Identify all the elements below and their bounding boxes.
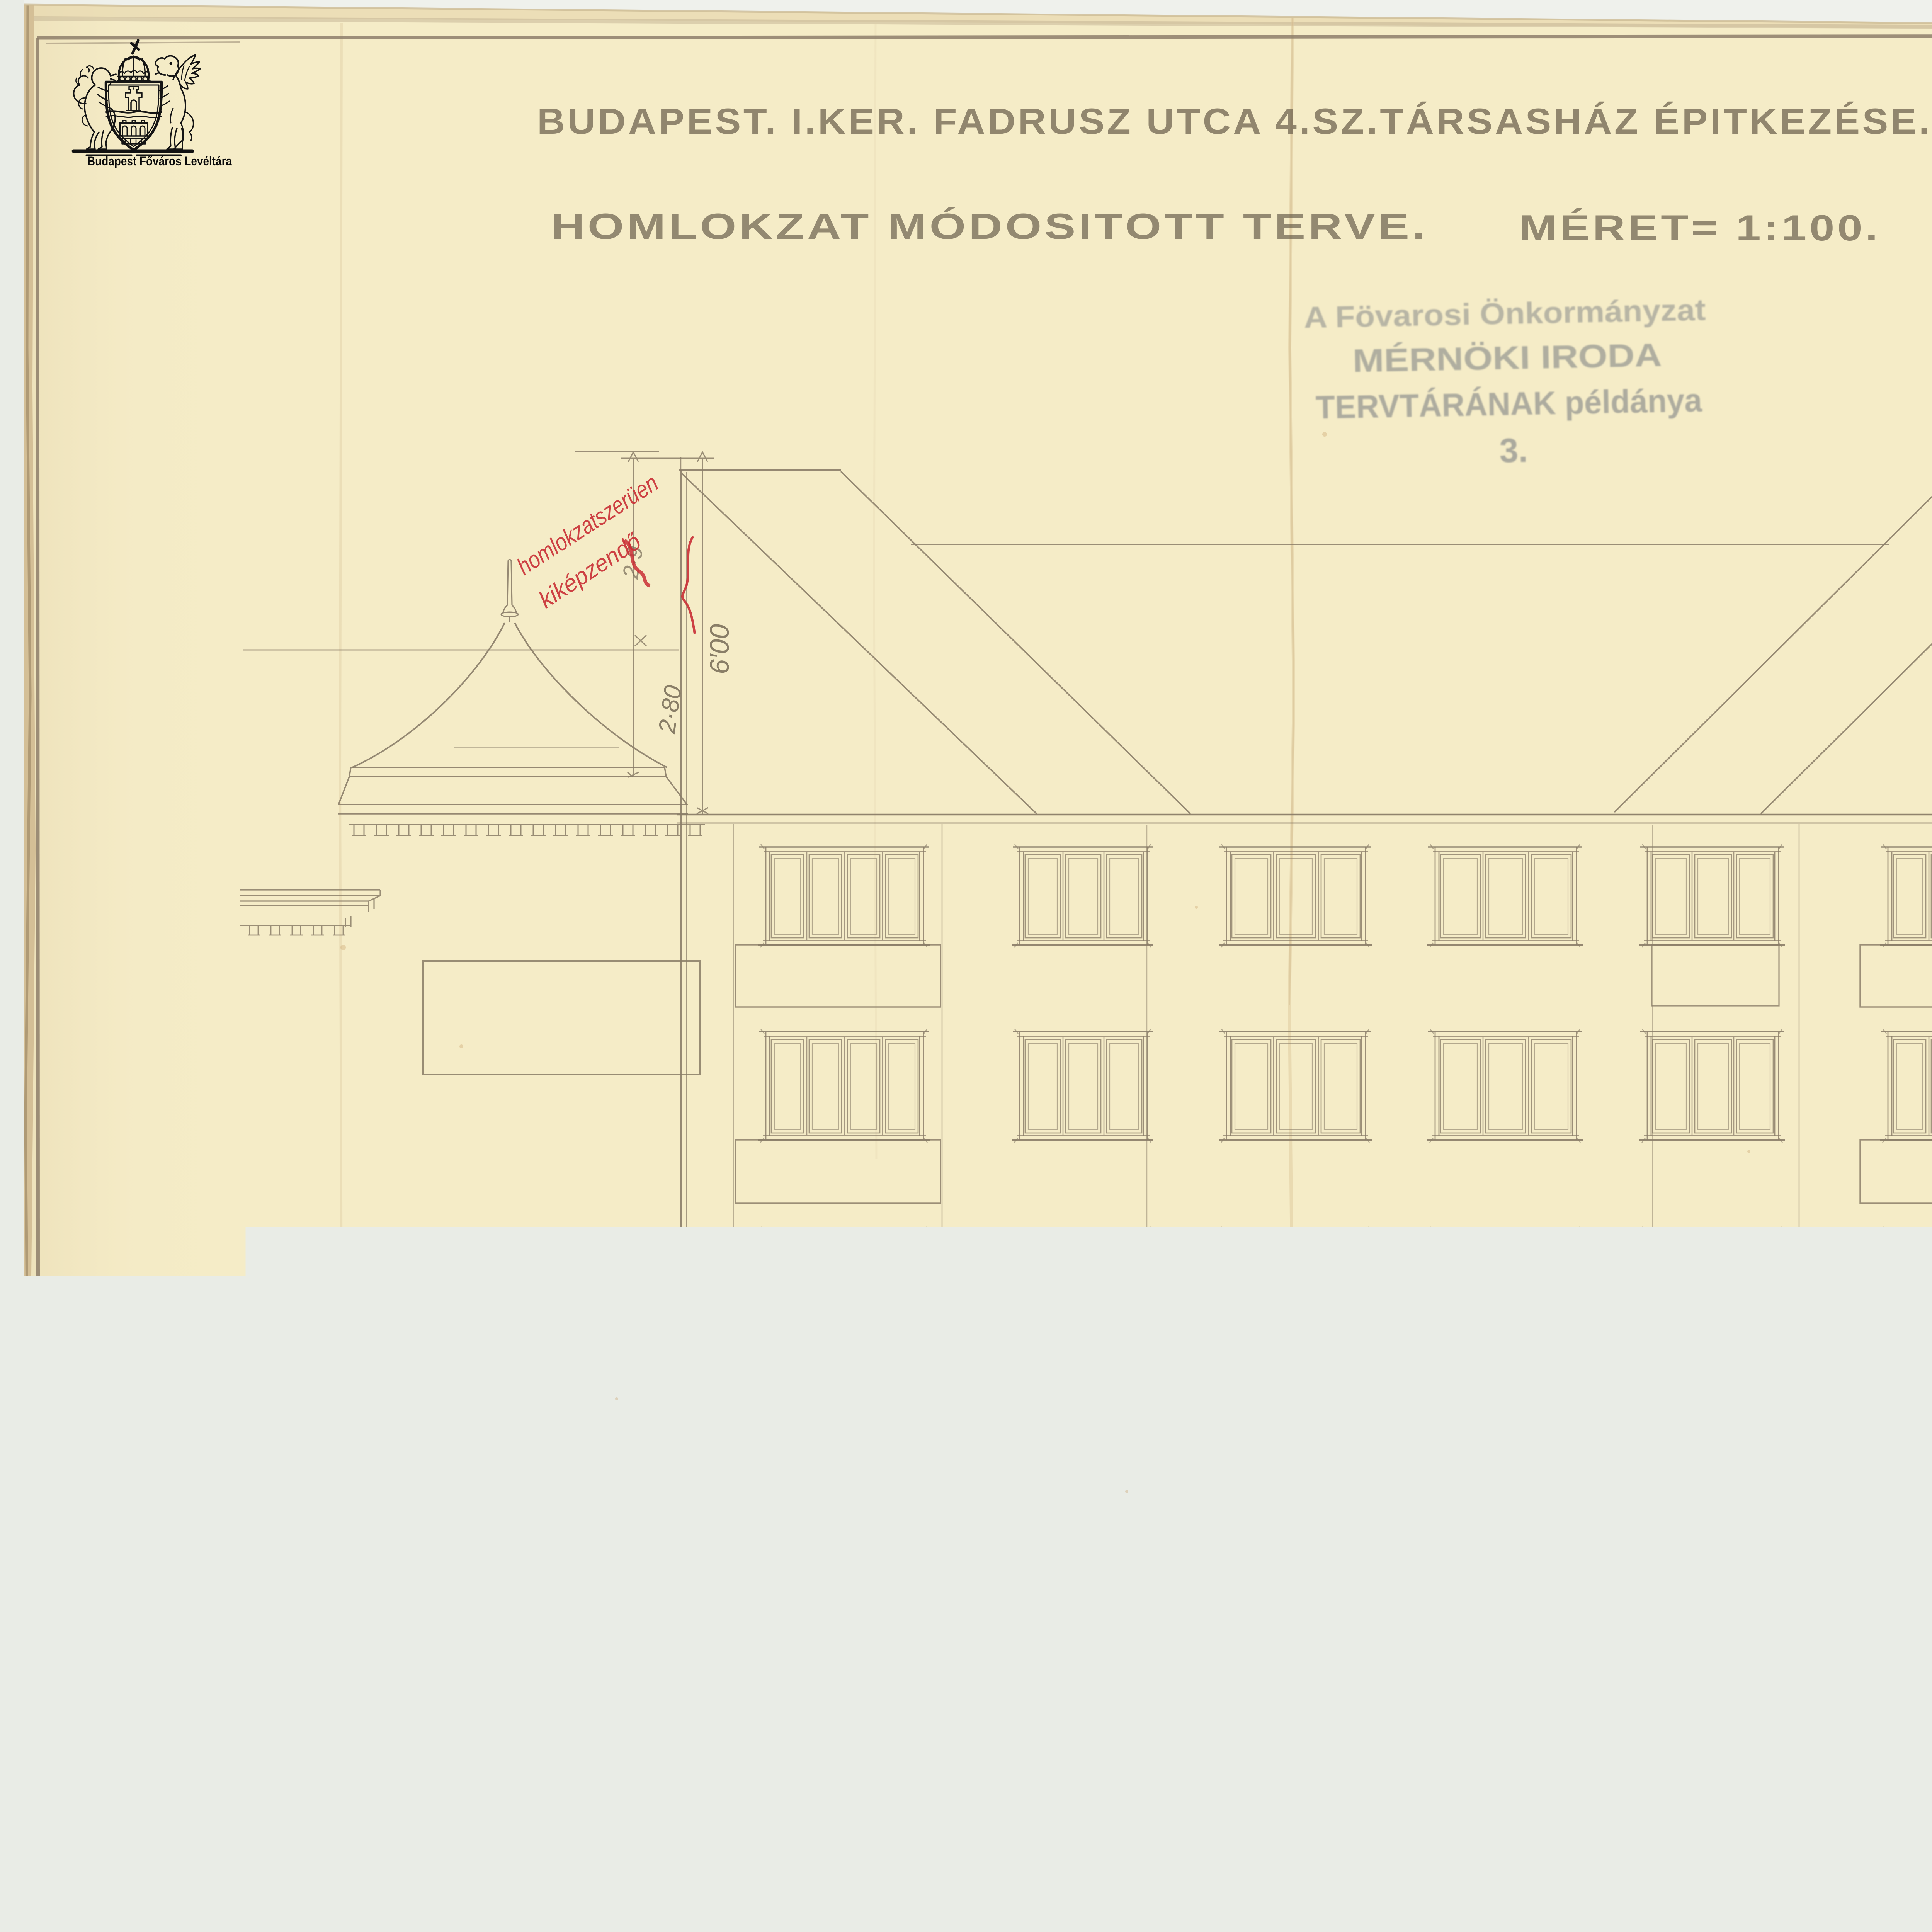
svg-text:TERVTÁRÁNAK példánya: TERVTÁRÁNAK példánya xyxy=(1315,382,1703,425)
svg-text:3.: 3. xyxy=(1499,431,1528,469)
svg-text:MÉRNÖKI IRODA: MÉRNÖKI IRODA xyxy=(1352,337,1662,379)
svg-text:6′00: 6′00 xyxy=(704,624,735,674)
svg-text:BUDAPEST. I.KER. FADRUSZ UTCA: BUDAPEST. I.KER. FADRUSZ UTCA 4.SZ.TÁRSA… xyxy=(537,101,1932,141)
svg-text:Budapest Főváros Levéltára: Budapest Főváros Levéltára xyxy=(87,154,232,168)
svg-text:HOMLOKZAT MÓDOSITOTT TERVE.: HOMLOKZAT MÓDOSITOTT TERVE. xyxy=(551,206,1428,247)
svg-text:MÉRET= 1:100.: MÉRET= 1:100. xyxy=(1519,207,1881,248)
